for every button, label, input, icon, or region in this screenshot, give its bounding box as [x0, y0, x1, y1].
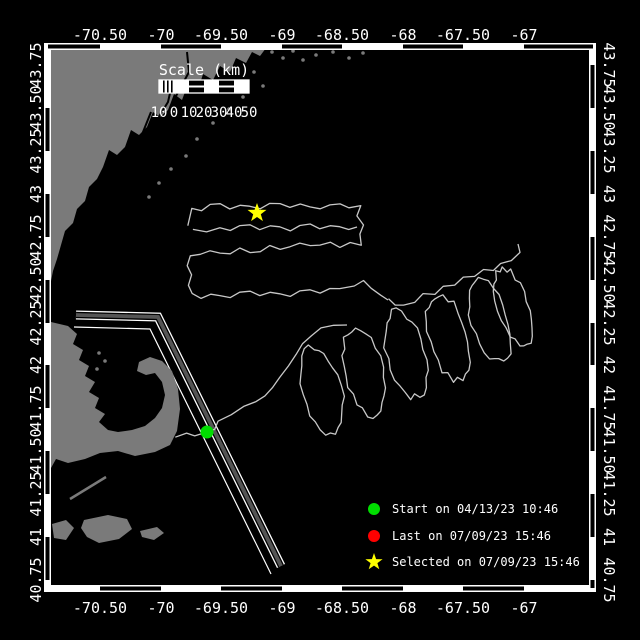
- axis-label-left: 43.25: [27, 128, 45, 173]
- axis-label-top: -68: [389, 26, 416, 44]
- axis-label-top: -69: [268, 26, 295, 44]
- axis-label-right: 42: [600, 356, 618, 374]
- islet: [95, 367, 99, 371]
- islet: [241, 95, 245, 99]
- axis-label-right: 41.25: [600, 471, 618, 516]
- axis-label-top: -67.50: [436, 26, 490, 44]
- legend-label: Start on 04/13/23 10:46: [392, 502, 558, 516]
- legend-label: Selected on 07/09/23 15:46: [392, 555, 580, 569]
- islet: [195, 137, 199, 141]
- start-marker[interactable]: [201, 426, 214, 439]
- axis-label-bottom: -70.50: [73, 599, 127, 617]
- islet: [314, 53, 318, 57]
- scale-bar: Scale (km)1001020304050: [151, 61, 258, 121]
- islet: [211, 121, 215, 125]
- axis-label-left: 41: [27, 528, 45, 546]
- islet: [361, 51, 365, 55]
- axis-label-bottom: -68: [389, 599, 416, 617]
- axis-label-right: 41.50: [600, 428, 618, 473]
- axis-label-left: 41.50: [27, 428, 45, 473]
- axis-label-bottom: -67: [510, 599, 537, 617]
- axis-label-left: 43: [27, 185, 45, 203]
- axis-label-left: 43.50: [27, 85, 45, 130]
- scale-bar-tick: 10: [151, 105, 168, 121]
- axis-label-right: 40.75: [600, 557, 618, 602]
- islet: [103, 359, 107, 363]
- axis-label-right: 42.50: [600, 257, 618, 302]
- legend-label: Last on 07/09/23 15:46: [392, 529, 551, 543]
- axis-label-right: 41: [600, 528, 618, 546]
- axis-label-top: -69.50: [194, 26, 248, 44]
- axis-label-bottom: -68.50: [315, 599, 369, 617]
- axis-label-left: 42: [27, 356, 45, 374]
- legend-item-1: Last on 07/09/23 15:46: [368, 529, 551, 543]
- islet: [147, 195, 151, 199]
- islet: [347, 56, 351, 60]
- axis-label-left: 42.50: [27, 257, 45, 302]
- axis-label-bottom: -67.50: [436, 599, 490, 617]
- islet: [169, 167, 173, 171]
- axis-label-right: 41.75: [600, 385, 618, 430]
- scale-bar-title: Scale (km): [159, 61, 249, 79]
- islet: [97, 351, 101, 355]
- axis-label-right: 43: [600, 185, 618, 203]
- legend-marker-circle: [368, 530, 380, 542]
- axis-label-left: 42.75: [27, 214, 45, 259]
- axis-label-bottom: -69.50: [194, 599, 248, 617]
- track-legend: Start on 04/13/23 10:46Last on 07/09/23 …: [365, 502, 579, 569]
- legend-marker-circle: [368, 503, 380, 515]
- axis-label-right: 42.75: [600, 214, 618, 259]
- axis-label-right: 43.75: [600, 42, 618, 87]
- axis-label-left: 40.75: [27, 557, 45, 602]
- axis-label-right: 43.25: [600, 128, 618, 173]
- islet: [281, 56, 285, 60]
- axis-label-top: -70: [147, 26, 174, 44]
- islet: [157, 181, 161, 185]
- axis-label-top: -68.50: [315, 26, 369, 44]
- islet: [331, 50, 335, 54]
- axis-label-right: 43.50: [600, 85, 618, 130]
- axis-label-left: 42.25: [27, 300, 45, 345]
- axis-label-top: -70.50: [73, 26, 127, 44]
- islet: [184, 154, 188, 158]
- axis-label-right: 42.25: [600, 300, 618, 345]
- scale-bar-tick: 50: [241, 105, 258, 121]
- islet: [252, 70, 256, 74]
- axis-label-left: 41.25: [27, 471, 45, 516]
- axis-label-top: -67: [510, 26, 537, 44]
- islet: [261, 84, 265, 88]
- islet: [301, 58, 305, 62]
- map-canvas: -70.50-70.50-70-70-69.50-69.50-69-69-68.…: [0, 0, 640, 640]
- islet: [270, 50, 274, 54]
- axis-label-bottom: -69: [268, 599, 295, 617]
- axis-label-bottom: -70: [147, 599, 174, 617]
- axis-label-left: 43.75: [27, 42, 45, 87]
- axis-label-left: 41.75: [27, 385, 45, 430]
- legend-item-2: Selected on 07/09/23 15:46: [365, 553, 579, 569]
- scale-bar-tick: 0: [170, 105, 178, 121]
- legend-item-0: Start on 04/13/23 10:46: [368, 502, 558, 516]
